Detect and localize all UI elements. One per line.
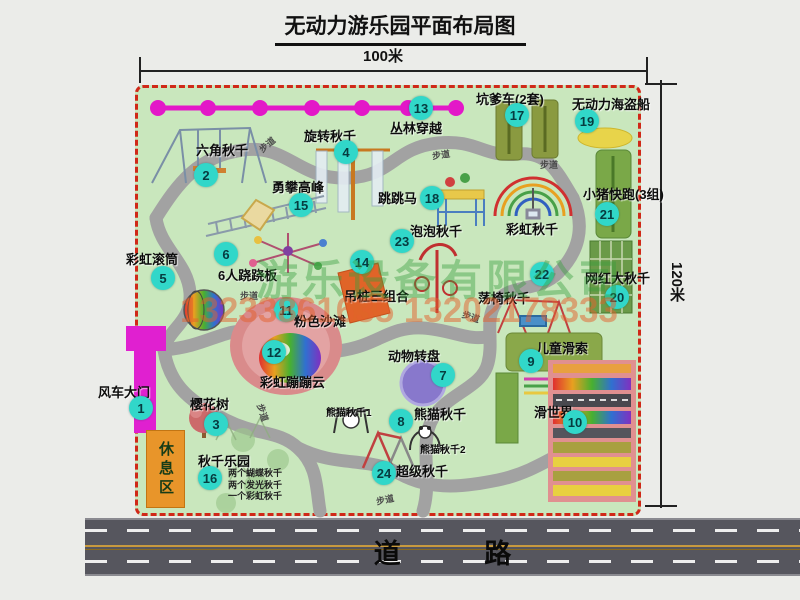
dimension-top-tick-left (139, 57, 141, 83)
attraction-23-label: 泡泡秋千 (410, 221, 462, 240)
slide-world-icon (548, 360, 636, 502)
dimension-right-line (660, 80, 662, 508)
walkway-label: 步道 (431, 147, 451, 162)
badge-2: 2 (194, 163, 218, 187)
badge-15: 15 (289, 193, 313, 217)
badge-13: 13 (409, 96, 433, 120)
badge-14: 14 (350, 250, 374, 274)
badge-16: 16 (198, 466, 222, 490)
attraction-9-label: 儿童滑索 (536, 338, 588, 357)
badge-4: 4 (334, 140, 358, 164)
road: 道 路 (85, 518, 800, 576)
panda-swing-1-label: 熊猫秋千1 (326, 404, 372, 419)
badge-3: 3 (204, 412, 228, 436)
attraction-13-label: 丛林穿越 (390, 118, 442, 137)
dimension-top-line (140, 70, 648, 72)
attraction-24-label: 超级秋千 (396, 461, 448, 480)
page-title-text: 无动力游乐园平面布局图 (275, 10, 526, 46)
swing-park-item: 两个发光秋千 (228, 480, 282, 492)
attraction-5-label: 彩虹滚筒 (126, 249, 178, 268)
attraction-12-label: 彩虹蹦蹦云 (260, 372, 325, 391)
page-title: 无动力游乐园平面布局图 (0, 10, 800, 46)
walkway-label: 步道 (540, 158, 558, 171)
dimension-top-tick-right (646, 57, 648, 83)
panda-swing-2-label: 熊猫秋千2 (420, 441, 466, 456)
attraction-18-label: 跳跳马 (378, 188, 417, 207)
attraction-2-label: 六角秋千 (196, 140, 248, 159)
dimension-top-label: 100米 (363, 45, 403, 66)
badge-24: 24 (372, 461, 396, 485)
attraction-11-label: 粉色沙滩 (294, 311, 346, 330)
badge-19: 19 (575, 109, 599, 133)
attraction-14-label: 吊桩三组合 (344, 286, 409, 305)
road-label: 道 路 (85, 532, 800, 571)
swing-park-item: 一个彩虹秋千 (228, 491, 282, 503)
badge-12: 12 (262, 340, 286, 364)
attraction-21-label: 小猪快跑(3组) (583, 184, 664, 203)
attraction-7-label: 动物转盘 (388, 346, 440, 365)
badge-9: 9 (519, 349, 543, 373)
dimension-right-label: 120米 (666, 262, 687, 302)
attraction-8-label: 熊猫秋千 (414, 404, 466, 423)
rainbow-swing-label: 彩虹秋千 (506, 219, 558, 238)
attraction-22-label: 荡椅秋千 (478, 288, 530, 307)
walkway-label: 步道 (240, 289, 258, 302)
badge-11: 11 (274, 298, 298, 322)
badge-6: 6 (214, 242, 238, 266)
badge-8: 8 (389, 409, 413, 433)
rest-area: 休息区 (146, 430, 185, 508)
badge-23: 23 (390, 229, 414, 253)
dimension-right-tick-top (645, 83, 677, 85)
badge-10: 10 (563, 410, 587, 434)
badge-7: 7 (431, 363, 455, 387)
dimension-right-tick-bottom (645, 505, 677, 507)
bubble-swing-icon (415, 244, 457, 313)
badge-22: 22 (530, 262, 554, 286)
badge-20: 20 (605, 285, 629, 309)
attraction-3-label: 樱花树 (190, 394, 229, 413)
attraction-6-label: 6人跷跷板 (218, 265, 277, 284)
park-map: 休息区 步道 步道 步道 步道 步道 步道 步道 风车大门 六角秋千 樱花树 旋… (135, 85, 641, 516)
swing-park-sublist: 两个蝴蝶秋千 两个发光秋千 一个彩虹秋千 (228, 468, 282, 503)
badge-18: 18 (420, 186, 444, 210)
badge-5: 5 (151, 266, 175, 290)
rainbow-roller-icon (184, 290, 224, 330)
jumping-horse-icon (438, 173, 484, 226)
badge-17: 17 (505, 103, 529, 127)
badge-21: 21 (595, 202, 619, 226)
screenshot-root: 无动力游乐园平面布局图 100米 120米 (0, 0, 800, 600)
rest-area-label: 休息区 (155, 441, 176, 498)
badge-1: 1 (129, 396, 153, 420)
swing-park-item: 两个蝴蝶秋千 (228, 468, 282, 480)
